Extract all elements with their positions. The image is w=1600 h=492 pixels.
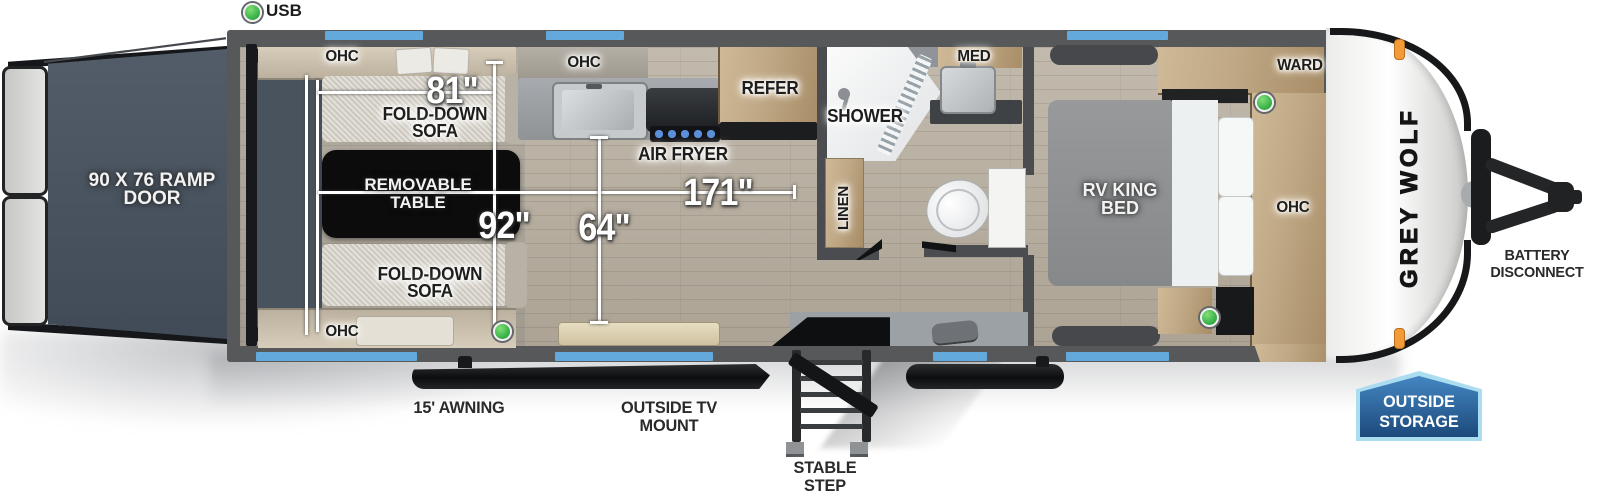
battery-disconnect-label: BATTERY DISCONNECT bbox=[1482, 247, 1591, 281]
marker-light-bottom bbox=[1394, 328, 1405, 349]
window-top-bedroom bbox=[1067, 31, 1168, 40]
awning-bracket-right bbox=[1036, 356, 1049, 367]
bedroom-ohc-cabinet bbox=[1250, 93, 1326, 346]
shower-label: SHOWER bbox=[827, 108, 903, 125]
air-fryer-label: AIR FRYER bbox=[636, 146, 731, 163]
refer-label: REFER bbox=[742, 80, 799, 97]
garage-rear-frame bbox=[246, 44, 257, 346]
stable-step-foot-right bbox=[850, 442, 868, 457]
bedroom-wall-top bbox=[1023, 47, 1034, 175]
awning-roll-right bbox=[906, 364, 1064, 389]
refrigerator-base bbox=[720, 122, 817, 140]
dim-81-label: 81" bbox=[416, 70, 488, 113]
garage-rear-opening bbox=[256, 58, 322, 332]
bedroom-ohc-label: OHC bbox=[1265, 199, 1322, 216]
usb-legend-dot-inner bbox=[243, 3, 262, 22]
tv-mount-label: OUTSIDE TV MOUNT bbox=[621, 399, 717, 435]
garage-ohc-bottom-cushion bbox=[356, 316, 454, 346]
usb-dot-bedroom-top bbox=[1255, 93, 1274, 112]
linen-label: LINEN bbox=[835, 180, 854, 236]
dim-tick-171-right bbox=[793, 185, 796, 199]
stable-step-rung-5 bbox=[800, 424, 863, 429]
stable-step-label: STABLE STEP bbox=[772, 459, 878, 492]
bed-bolster-top bbox=[1050, 45, 1158, 65]
stable-step-foot-left bbox=[786, 442, 804, 457]
galley-bench bbox=[558, 322, 720, 346]
awning-label: 15' AWNING bbox=[401, 399, 516, 417]
dim-64-label: 64" bbox=[566, 207, 642, 250]
usb-legend-label: USB bbox=[266, 1, 326, 21]
window-top-kitchen bbox=[546, 31, 624, 40]
dim-extension-line-1 bbox=[305, 75, 308, 335]
rv-king-bed-label: RV KING BED bbox=[1074, 181, 1166, 217]
outside-storage-label: OUTSIDE STORAGE bbox=[1371, 392, 1468, 432]
kitchen-faucet bbox=[586, 84, 602, 89]
garage-ohc-bottom-label: OHC bbox=[314, 323, 371, 340]
dim-171-label: 171" bbox=[675, 172, 761, 215]
marker-light-top bbox=[1394, 39, 1405, 60]
dim-tick-64-bottom bbox=[590, 321, 608, 324]
garage-ohc-top-label: OHC bbox=[314, 48, 371, 65]
ramp-rail-panel-top bbox=[2, 66, 48, 196]
bath-door-leaf bbox=[988, 168, 1026, 248]
stable-step-rung-4 bbox=[800, 408, 863, 413]
kitchen-ohc-label: OHC bbox=[556, 54, 613, 71]
dim-tick-92-top bbox=[486, 61, 503, 64]
bed-pillow-1 bbox=[1218, 117, 1254, 197]
window-bottom-garage bbox=[256, 352, 417, 361]
bed-foot-cabinet-dark bbox=[1216, 287, 1254, 335]
dim-tick-64-top bbox=[590, 136, 608, 139]
ramp-door-label: 90 X 76 RAMP DOOR bbox=[82, 172, 222, 208]
window-bottom-bedroom bbox=[1066, 352, 1169, 361]
bath-sink bbox=[940, 66, 996, 114]
usb-legend-dot bbox=[243, 3, 258, 18]
bed-pillow-2 bbox=[1218, 196, 1254, 276]
king-bed-bedding bbox=[1172, 100, 1218, 286]
fold-down-sofa-bottom-arm bbox=[505, 242, 527, 308]
brand-logo: GREY WOLF bbox=[1396, 86, 1430, 310]
kitchen-sink-basin bbox=[562, 90, 634, 130]
usb-dot-garage bbox=[493, 322, 512, 341]
ward-label: WARD bbox=[1271, 57, 1330, 74]
removable-table-label: REMOVABLE TABLE bbox=[358, 176, 478, 212]
window-bottom-bath bbox=[933, 352, 987, 361]
window-bottom-galley bbox=[555, 352, 713, 361]
usb-dot-bedroom-bottom bbox=[1200, 308, 1219, 327]
bedroom-ohc-open-door bbox=[1254, 344, 1332, 362]
dim-92-label: 92" bbox=[466, 205, 542, 248]
med-label: MED bbox=[946, 48, 1003, 65]
awning-bracket bbox=[458, 356, 472, 368]
bed-bolster-bottom bbox=[1052, 326, 1160, 346]
dim-extension-line-2 bbox=[316, 80, 319, 332]
window-top-garage bbox=[325, 31, 423, 40]
hitch-coupler-knob bbox=[1570, 190, 1582, 204]
ramp-rail-panel-bottom bbox=[2, 196, 48, 326]
cooktop-burners bbox=[650, 126, 720, 142]
floorplan-canvas: 90 X 76 RAMP DOOR bbox=[0, 0, 1600, 492]
fold-down-sofa-bottom-label: FOLD-DOWN SOFA bbox=[354, 266, 506, 300]
